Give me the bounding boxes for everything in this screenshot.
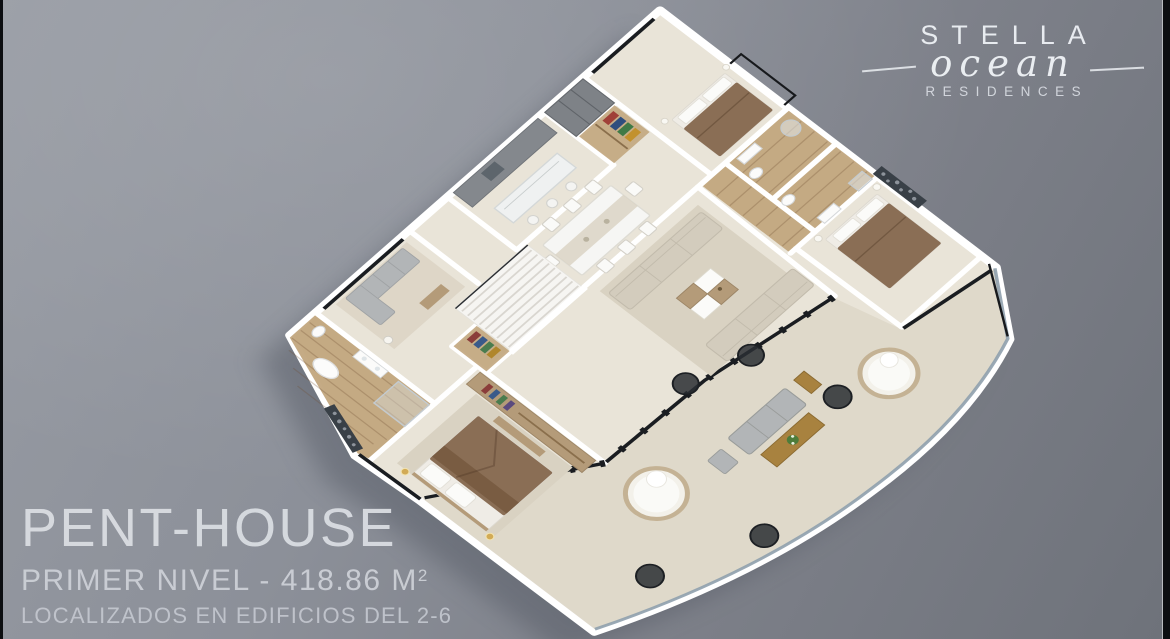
level-area-label: PRIMER NIVEL - 418.86 M2 (21, 564, 452, 598)
brand-subtitle: RESIDENCES (888, 84, 1118, 99)
frame-bar-left (0, 0, 3, 639)
brand-script: ocean (930, 42, 1076, 85)
page-title: PENT-HOUSE (21, 501, 452, 555)
brand-logo: STELLA ocean RESIDENCES (888, 20, 1118, 99)
level-area-text: PRIMER NIVEL - 418.86 M (21, 564, 418, 597)
caption-block: PENT-HOUSE PRIMER NIVEL - 418.86 M2 LOCA… (21, 501, 452, 629)
area-superscript: 2 (418, 566, 427, 585)
render-canvas: STELLA ocean RESIDENCES PENT-HOUSE PRIME… (0, 0, 1170, 639)
brand-script-wrap: ocean (888, 42, 1118, 86)
frame-bar-right (1162, 0, 1170, 639)
buildings-note: LOCALIZADOS EN EDIFICIOS DEL 2-6 (21, 603, 452, 629)
